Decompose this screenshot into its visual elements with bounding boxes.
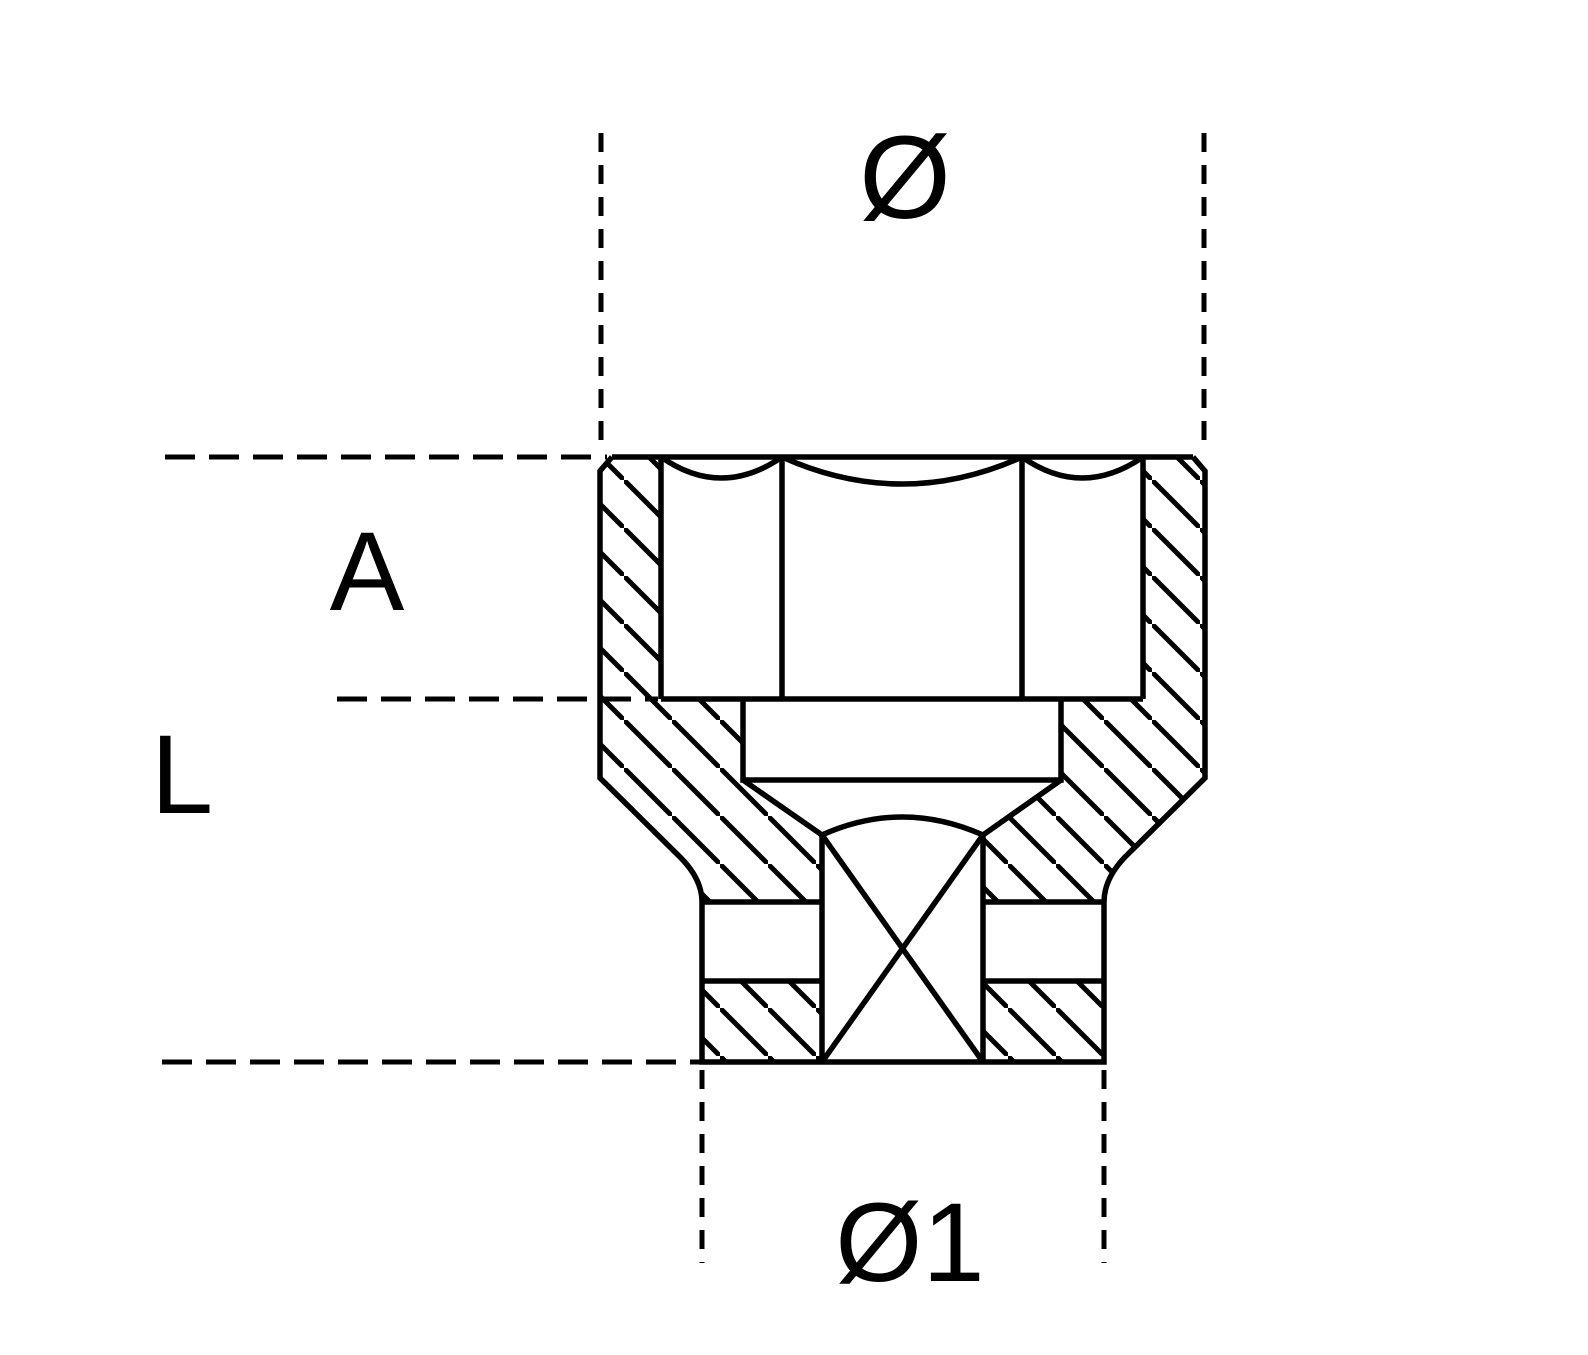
technical-drawing-page: Ø A L Ø1 <box>0 0 1588 1355</box>
hatch-region-upper-left <box>600 457 822 902</box>
label-overall-length: L <box>151 712 213 837</box>
groove-lines <box>702 902 1104 981</box>
hex-entry-scallops <box>661 457 1143 484</box>
dimension-labels: Ø A L Ø1 <box>151 112 985 1305</box>
label-drive-side-diameter: Ø1 <box>835 1180 984 1305</box>
label-socket-depth: A <box>330 509 405 634</box>
square-drive-cross <box>822 835 983 1062</box>
hatch-region-lower-left <box>702 981 822 1062</box>
label-outer-diameter: Ø <box>859 112 951 244</box>
drive-dome-arc <box>822 817 983 835</box>
hatch-region-upper-right <box>983 457 1205 902</box>
hatch-region-lower-right <box>983 981 1104 1062</box>
section-hatching <box>600 457 1205 1062</box>
socket-cross-section-drawing: Ø A L Ø1 <box>0 0 1588 1355</box>
hex-cavity-walls <box>661 457 1143 699</box>
intermediate-cavity <box>743 699 1061 780</box>
